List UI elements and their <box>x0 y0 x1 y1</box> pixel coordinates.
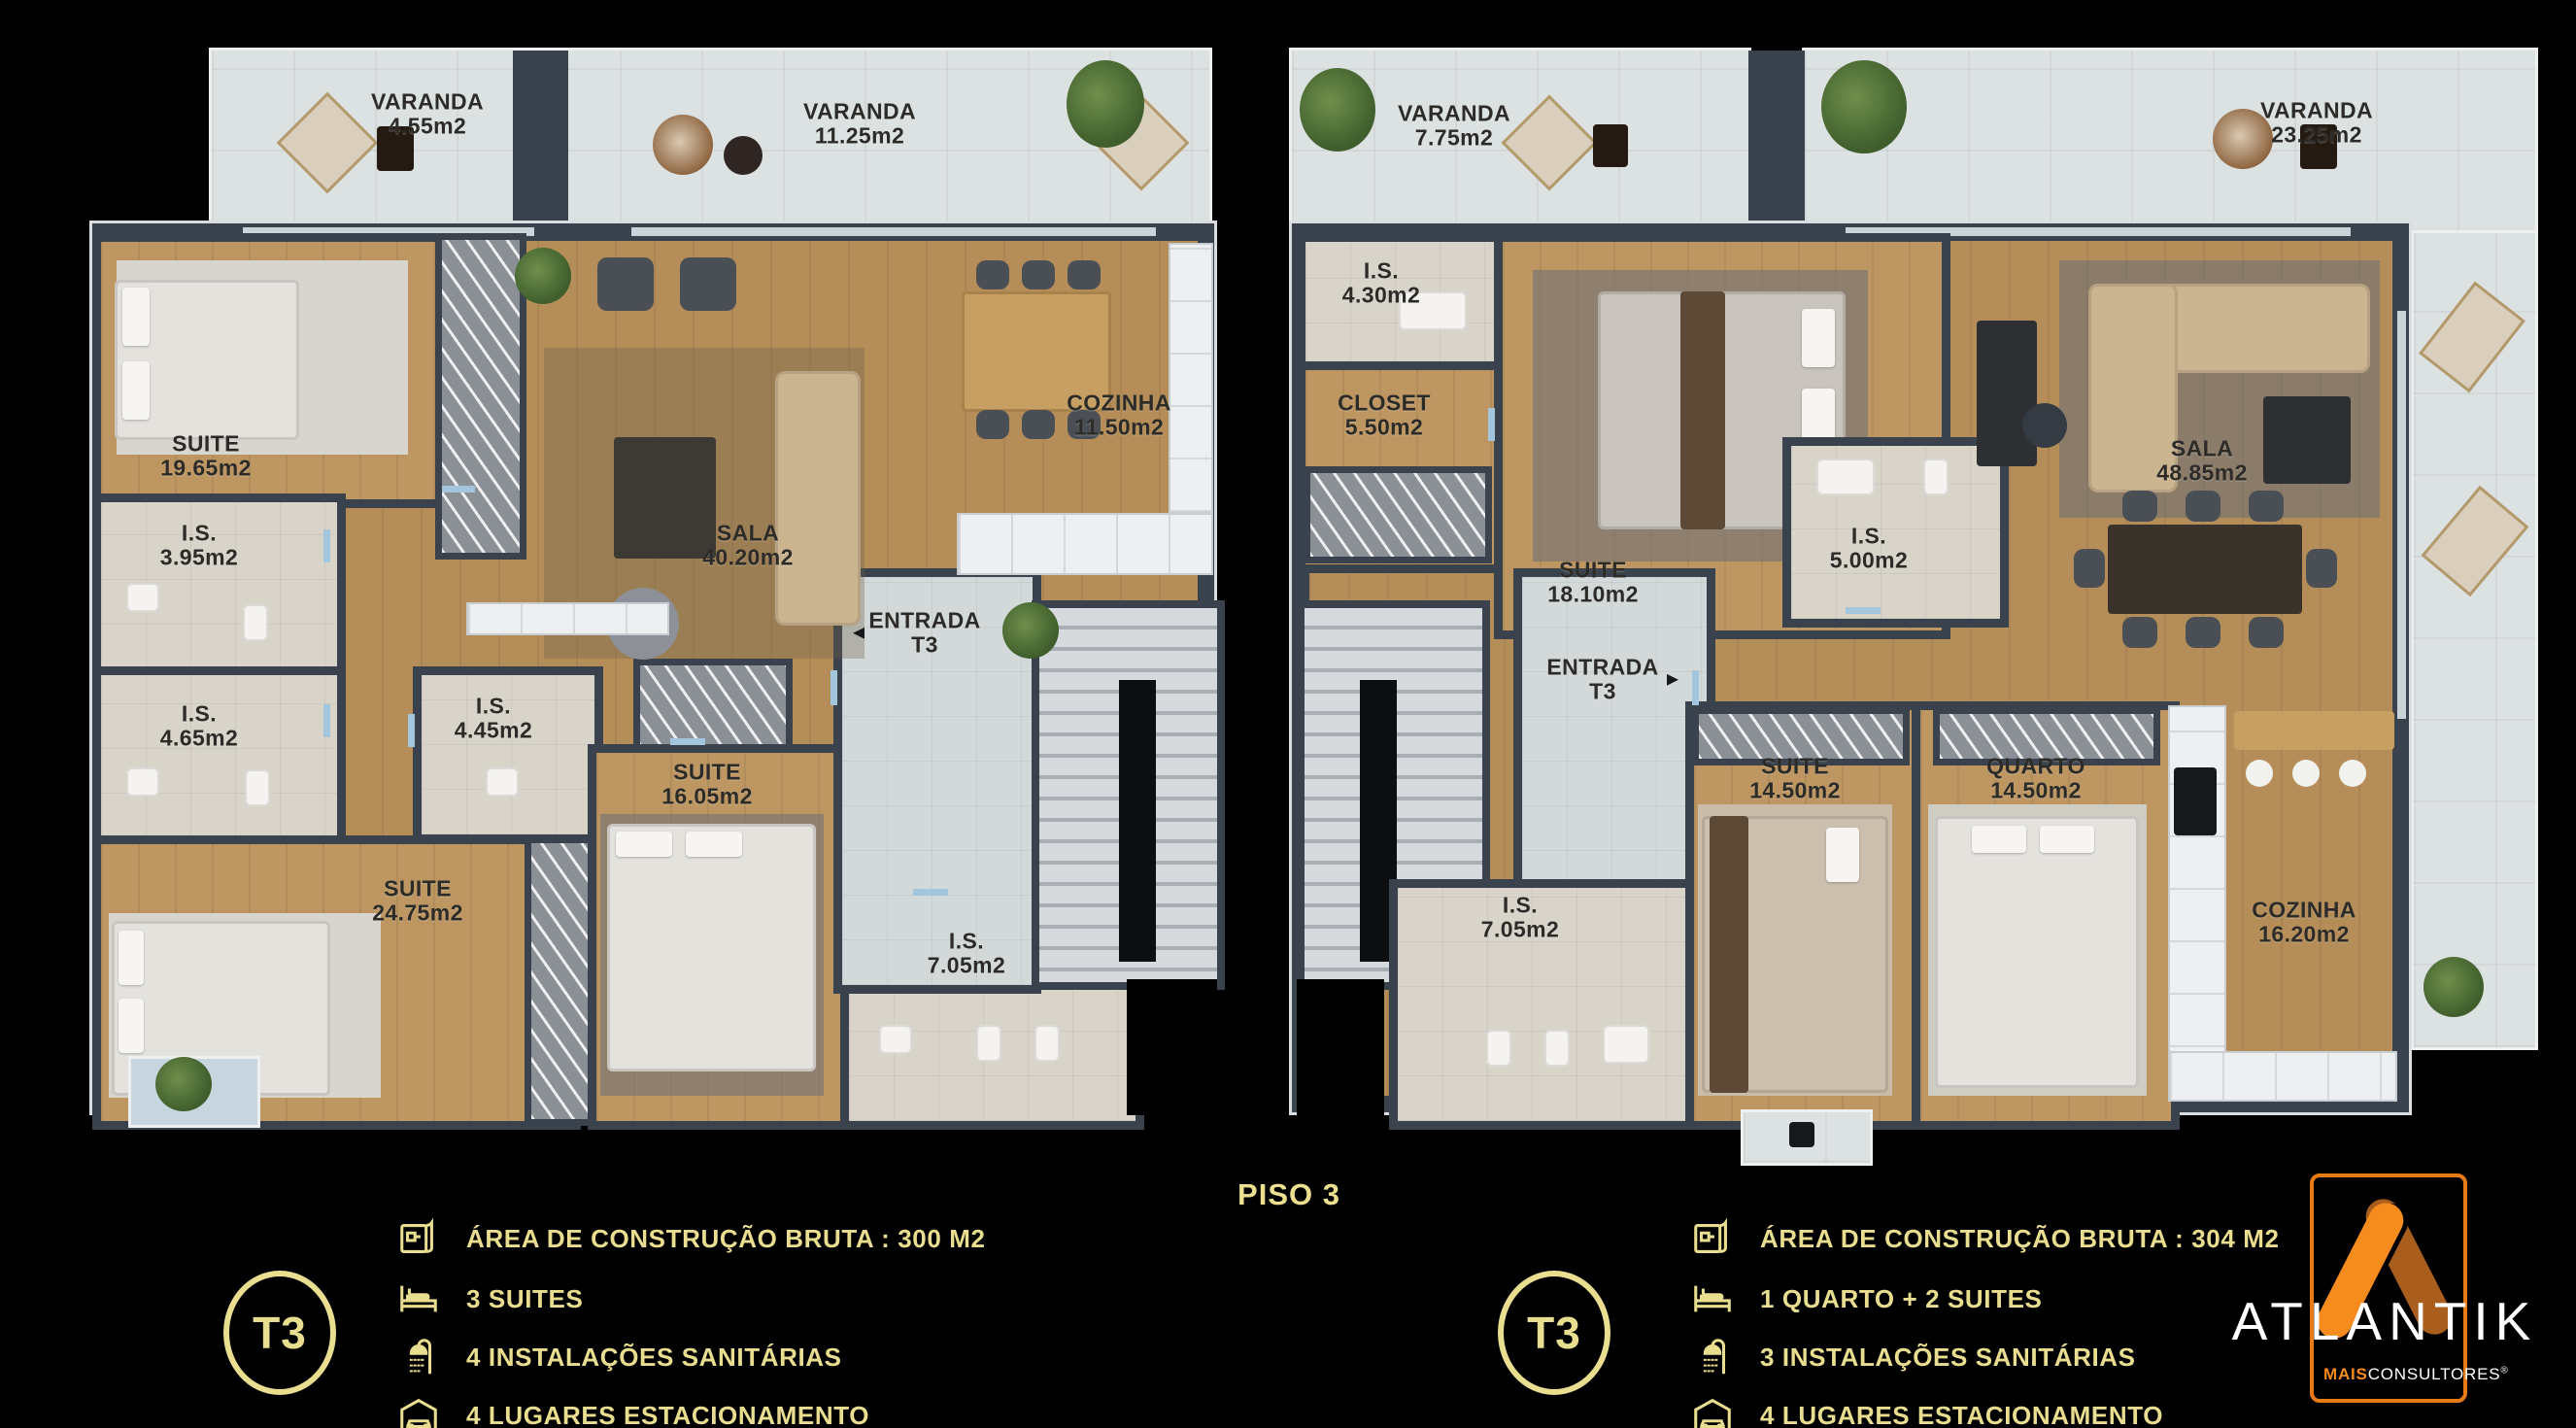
sink <box>486 767 519 797</box>
cube-decor <box>1789 1122 1814 1147</box>
room-area: 4.30m2 <box>1342 284 1420 308</box>
bed-icon <box>396 1276 441 1321</box>
chair <box>1022 410 1055 439</box>
stool <box>2339 760 2366 787</box>
kitchen-island <box>2234 711 2394 750</box>
pillow <box>1802 309 1835 367</box>
toilet <box>243 604 268 641</box>
room-label: VARANDA11.25m2 <box>803 100 916 150</box>
balcony-divider-wall <box>513 51 568 233</box>
door[interactable] <box>830 670 837 705</box>
chair <box>1022 260 1055 289</box>
kitchen-counter <box>2168 1051 2397 1102</box>
room-name: I.S. <box>455 695 532 719</box>
wardrobe-closet <box>435 233 526 560</box>
pillow <box>686 832 742 857</box>
room-name: I.S. <box>1481 894 1559 918</box>
floor-title: PISO 3 <box>1237 1177 1340 1212</box>
room-area: 5.50m2 <box>1338 416 1431 440</box>
void <box>1297 979 1384 1115</box>
car-garage-icon <box>1690 1393 1735 1428</box>
room-area: 7.05m2 <box>928 954 1005 978</box>
hanging-chair <box>653 115 713 175</box>
chair <box>2186 491 2220 522</box>
room-label: VARANDA4.55m2 <box>371 90 484 140</box>
room-area: 7.75m2 <box>1398 126 1510 151</box>
legend-text: 4 LUGARES ESTACIONAMENTO <box>1760 1401 2163 1428</box>
stove <box>2174 767 2217 835</box>
room-name: CLOSET <box>1338 391 1431 416</box>
room-label: CLOSET5.50m2 <box>1338 391 1431 441</box>
room-label: VARANDA23.25m2 <box>2260 99 2373 149</box>
bidet <box>1544 1030 1570 1067</box>
door[interactable] <box>408 714 415 747</box>
registered-mark: ® <box>2500 1365 2508 1376</box>
room-area: 40.20m2 <box>702 546 794 570</box>
room-name: I.S. <box>928 930 1005 954</box>
room-name: SUITE <box>160 432 252 457</box>
window <box>631 227 1156 236</box>
tv-cabinet <box>1977 321 2037 466</box>
plant <box>1067 60 1144 148</box>
pillow <box>122 361 150 420</box>
wardrobe-closet <box>1304 466 1492 563</box>
stool <box>2246 760 2273 787</box>
room-label: I.S.5.00m2 <box>1830 525 1908 574</box>
tagline-mais: MAIS <box>2323 1365 2368 1383</box>
legend-text: 4 INSTALAÇÕES SANITÁRIAS <box>466 1343 842 1373</box>
room-name: COZINHA <box>1067 391 1171 416</box>
sink <box>879 1025 912 1054</box>
room-area: 23.25m2 <box>2260 123 2373 148</box>
toilet <box>1923 459 1949 495</box>
stool <box>2292 760 2320 787</box>
bidet <box>1034 1025 1060 1062</box>
toilet <box>245 769 270 806</box>
room-is-465 <box>92 666 346 847</box>
door[interactable] <box>670 738 705 745</box>
legend-text: ÁREA DE CONSTRUÇÃO BRUTA : 304 M2 <box>1760 1224 2280 1254</box>
pillow <box>1972 826 2026 853</box>
pillow <box>119 999 144 1053</box>
armchair <box>597 257 654 311</box>
room-label: SUITE16.05m2 <box>661 761 753 810</box>
room-name: I.S. <box>160 522 238 546</box>
room-area: 11.25m2 <box>803 124 916 149</box>
chair <box>976 260 1009 289</box>
room-label: SUITE19.65m2 <box>160 432 252 482</box>
room-name: VARANDA <box>371 90 484 115</box>
room-label: I.S.7.05m2 <box>928 930 1005 979</box>
legend-item-bathrooms: 4 INSTALAÇÕES SANITÁRIAS <box>396 1335 842 1379</box>
legend-text: 1 QUARTO + 2 SUITES <box>1760 1284 2043 1314</box>
room-name: COZINHA <box>2252 899 2356 923</box>
legend-item-parking: 4 LUGARES ESTACIONAMENTO <box>396 1393 869 1428</box>
room-label-entrance-right: ENTRADAT3 <box>1546 656 1658 705</box>
room-label: SALA48.85m2 <box>2156 437 2248 487</box>
chair <box>1068 260 1101 289</box>
room-name: VARANDA <box>2260 99 2373 123</box>
room-name: SUITE <box>372 877 463 901</box>
room-area: T3 <box>868 633 980 658</box>
sideboard <box>466 602 669 635</box>
bed <box>1935 816 2139 1088</box>
brand-name: ATLANTIK <box>2232 1290 2538 1352</box>
shower-icon <box>1690 1335 1735 1379</box>
pillow <box>616 832 672 857</box>
room-area: 11.50m2 <box>1067 416 1171 440</box>
pillow <box>1826 828 1859 882</box>
side-table <box>2263 396 2351 484</box>
room-label: SALA40.20m2 <box>702 522 794 571</box>
chair <box>2122 491 2157 522</box>
room-area: 24.75m2 <box>372 901 463 926</box>
door[interactable] <box>323 529 330 562</box>
chair <box>976 410 1009 439</box>
plant <box>155 1057 212 1111</box>
sofa <box>775 371 861 626</box>
floorplan-canvas: VARANDA4.55m2 VARANDA11.25m2 VARANDA7.75… <box>0 0 2576 1428</box>
room-label: I.S.4.65m2 <box>160 702 238 752</box>
shower-icon <box>396 1335 441 1379</box>
legend-text: 4 LUGARES ESTACIONAMENTO <box>466 1401 869 1428</box>
room-label: SUITE18.10m2 <box>1547 559 1639 608</box>
typology-badge: T3 <box>223 1271 336 1395</box>
void <box>1127 979 1217 1115</box>
door[interactable] <box>1692 670 1699 705</box>
chair <box>2122 617 2157 648</box>
stair-core <box>1119 680 1156 962</box>
door[interactable] <box>1846 607 1881 614</box>
entrance-arrow-icon: ► <box>1663 669 1682 692</box>
room-name: I.S. <box>1830 525 1908 549</box>
room-label: QUARTO14.50m2 <box>1986 755 2085 804</box>
balcony-strip-right-large <box>1805 51 2535 233</box>
pillow <box>2040 826 2094 853</box>
kitchen-counter <box>1169 243 1213 514</box>
toilet <box>1486 1030 1511 1067</box>
kitchen-counter <box>2168 705 2226 1102</box>
chair <box>2074 549 2105 588</box>
room-area: 19.65m2 <box>160 457 252 481</box>
room-area: 14.50m2 <box>1749 779 1841 803</box>
window <box>2397 311 2406 719</box>
armchair <box>680 257 736 311</box>
legend-item-area: ÁREA DE CONSTRUÇÃO BRUTA : 304 M2 <box>1690 1216 2280 1261</box>
coffee-table <box>614 437 716 559</box>
legend-item-area: ÁREA DE CONSTRUÇÃO BRUTA : 300 M2 <box>396 1216 986 1261</box>
room-area: 4.65m2 <box>160 727 238 751</box>
room-label: I.S.7.05m2 <box>1481 894 1559 943</box>
room-name: QUARTO <box>1986 755 2085 779</box>
brand-tagline: MAISCONSULTORES® <box>2323 1365 2509 1384</box>
blueprint-icon <box>396 1216 441 1261</box>
balcony-divider-wall <box>1748 51 1805 233</box>
car-garage-icon <box>396 1393 441 1428</box>
room-name: SALA <box>2156 437 2248 461</box>
bed-icon <box>1690 1276 1735 1321</box>
room-area: 14.50m2 <box>1986 779 2085 803</box>
room-name: SUITE <box>661 761 753 785</box>
room-area: 16.05m2 <box>661 785 753 809</box>
chair <box>2306 549 2337 588</box>
legend-item-bedrooms: 1 QUARTO + 2 SUITES <box>1690 1276 2043 1321</box>
room-name: SALA <box>702 522 794 546</box>
room-area: 48.85m2 <box>2156 461 2248 486</box>
chair <box>2186 617 2220 648</box>
room-area: 4.55m2 <box>371 115 484 139</box>
chair <box>2249 617 2284 648</box>
round-table <box>2022 403 2067 448</box>
legend-item-parking: 4 LUGARES ESTACIONAMENTO <box>1690 1393 2163 1428</box>
toilet <box>976 1025 1001 1062</box>
room-label: VARANDA7.75m2 <box>1398 102 1510 152</box>
room-label: I.S.4.30m2 <box>1342 259 1420 309</box>
bed-runner <box>1710 816 1748 1093</box>
room-label: SUITE24.75m2 <box>372 877 463 927</box>
sink <box>126 583 159 612</box>
wardrobe-closet <box>525 835 594 1126</box>
hall-closet <box>633 659 793 754</box>
room-area: 3.95m2 <box>160 546 238 570</box>
room-name: ENTRADA <box>1546 656 1658 680</box>
room-area: T3 <box>1546 680 1658 704</box>
chair <box>2249 491 2284 522</box>
room-label: I.S.4.45m2 <box>455 695 532 744</box>
room-label: I.S.3.95m2 <box>160 522 238 571</box>
legend-text: 3 INSTALAÇÕES SANITÁRIAS <box>1760 1343 2136 1373</box>
room-name: SUITE <box>1749 755 1841 779</box>
dining-table <box>2108 525 2302 614</box>
tagline-consultores: CONSULTORES <box>2368 1365 2501 1383</box>
blueprint-icon <box>1690 1216 1735 1261</box>
room-area: 7.05m2 <box>1481 918 1559 942</box>
room-name: I.S. <box>1342 259 1420 284</box>
plant <box>1821 60 1907 153</box>
room-label-entrance-left: ENTRADAT3 <box>868 609 980 659</box>
round-table <box>724 136 763 175</box>
room-name: SUITE <box>1547 559 1639 583</box>
room-name: VARANDA <box>803 100 916 124</box>
sink <box>126 767 159 797</box>
legend-item-bathrooms: 3 INSTALAÇÕES SANITÁRIAS <box>1690 1335 2136 1379</box>
room-label: COZINHA11.50m2 <box>1067 391 1171 441</box>
room-name: VARANDA <box>1398 102 1510 126</box>
plant <box>1002 602 1059 659</box>
room-label: COZINHA16.20m2 <box>2252 899 2356 948</box>
room-name: I.S. <box>160 702 238 727</box>
door[interactable] <box>323 704 330 737</box>
room-label: SUITE14.50m2 <box>1749 755 1841 804</box>
room-area: 16.20m2 <box>2252 923 2356 947</box>
door[interactable] <box>442 486 475 493</box>
door[interactable] <box>1488 408 1495 441</box>
plant <box>1300 68 1375 152</box>
shower-tray <box>1603 1025 1649 1064</box>
pillow <box>119 931 144 985</box>
legend-item-bedrooms: 3 SUITES <box>396 1276 583 1321</box>
pillow <box>122 288 150 346</box>
entrance-arrow-icon: ◄ <box>849 623 868 645</box>
kitchen-counter <box>957 513 1213 575</box>
room-area: 5.00m2 <box>1830 549 1908 573</box>
legend-text: 3 SUITES <box>466 1284 583 1314</box>
side-table <box>1593 124 1628 167</box>
vanity <box>1816 459 1875 495</box>
bed-runner <box>1680 291 1725 529</box>
plant <box>515 248 571 304</box>
bed <box>607 824 816 1071</box>
room-area: 4.45m2 <box>455 719 532 743</box>
door[interactable] <box>913 889 948 896</box>
plant <box>2423 957 2484 1017</box>
typology-badge: T3 <box>1498 1271 1610 1395</box>
room-area: 18.10m2 <box>1547 583 1639 607</box>
room-name: ENTRADA <box>868 609 980 633</box>
legend-text: ÁREA DE CONSTRUÇÃO BRUTA : 300 M2 <box>466 1224 986 1254</box>
